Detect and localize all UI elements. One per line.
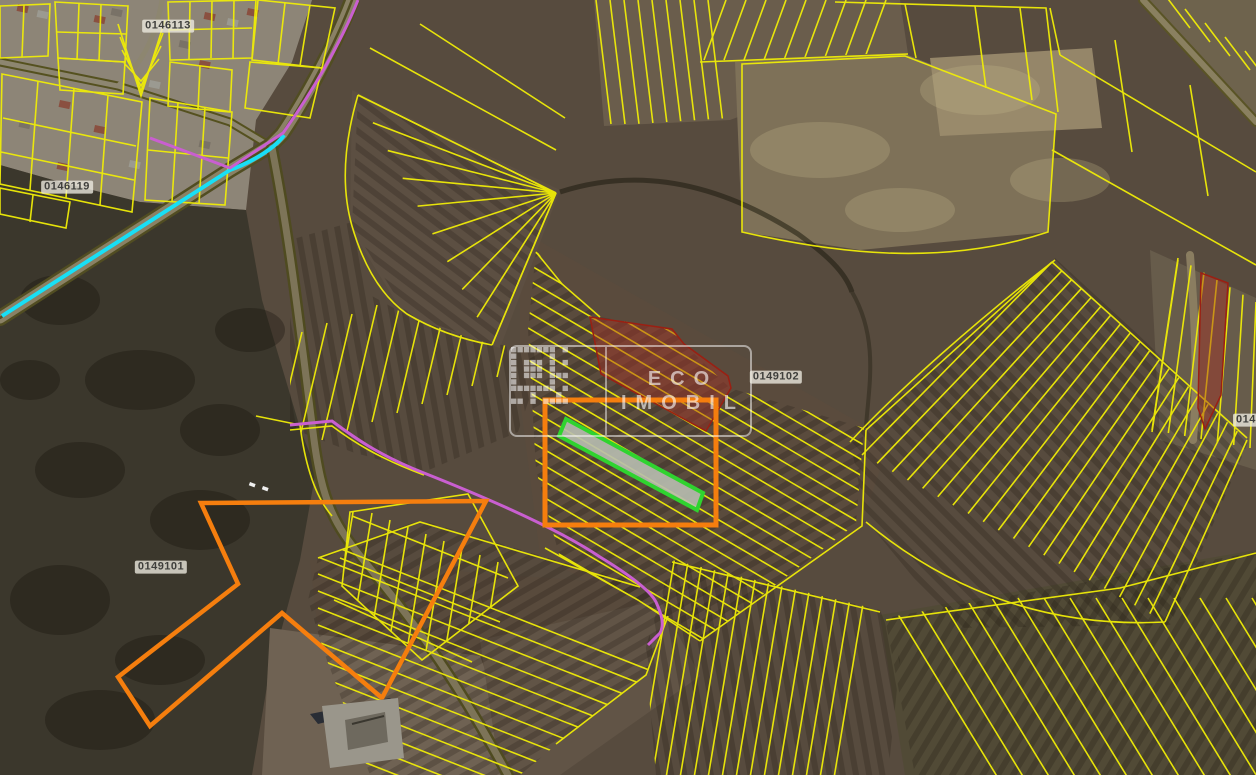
cadastral-label: 0146113 — [142, 20, 194, 33]
satellite-map — [0, 0, 1256, 775]
map-viewport[interactable]: ECO IMOBIL 0146113 0146119 0149101 01491… — [0, 0, 1256, 775]
cadastral-label: 0149102 — [750, 371, 802, 384]
cadastral-label-partial: 01491 — [1233, 414, 1256, 427]
cadastral-label: 0149101 — [135, 561, 187, 574]
cadastral-label: 0146119 — [41, 181, 93, 194]
